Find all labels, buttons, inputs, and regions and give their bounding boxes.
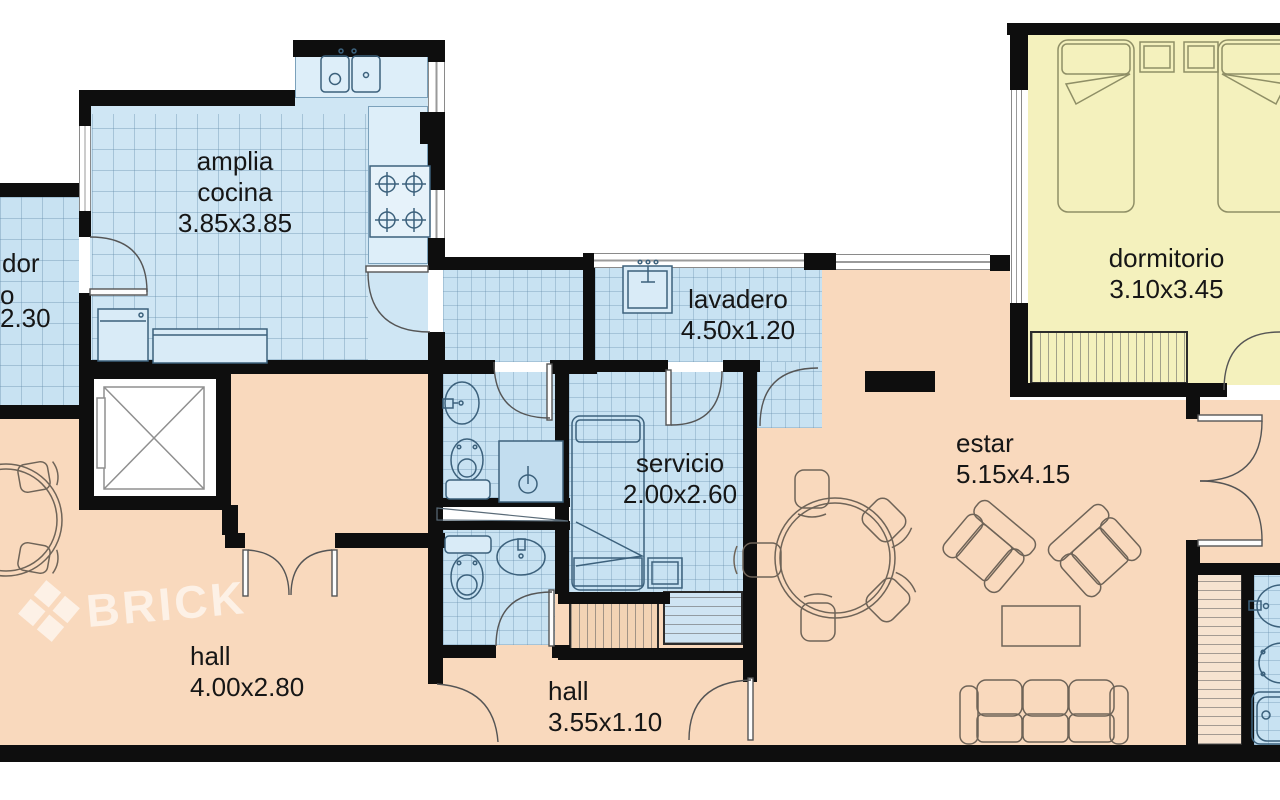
kitchen-sink-icon: [321, 49, 380, 92]
room-label-servicio: servicio 2.00x2.60: [618, 448, 742, 510]
room-label-dormitorio: dormitorio 3.10x3.45: [1094, 243, 1239, 305]
floor-plan: BRICK dor o 2.30 amplia cocina 3.85x3.85…: [0, 0, 1280, 800]
lavadero-name: lavadero: [668, 284, 808, 315]
cocina-line2: cocina: [160, 177, 310, 208]
hall-table-icon: [0, 459, 62, 576]
brick-logo-icon: [14, 576, 84, 646]
cocina-dims: 3.85x3.85: [160, 208, 310, 239]
dining-set-icon: [734, 470, 920, 641]
lavadero-dims: 4.50x1.20: [668, 315, 808, 346]
duct-icon: [437, 508, 568, 521]
room-label-lavadero: lavadero 4.50x1.20: [668, 284, 808, 346]
kitchen-cabinet-icon: [98, 309, 267, 363]
bath2-fixtures: [445, 536, 545, 599]
living-furniture: [940, 497, 1144, 744]
servicio-dims: 2.00x2.60: [618, 479, 742, 510]
room-label-hall-small: hall 3.55x1.10: [548, 676, 662, 738]
room-label-comedor-3: 2.30: [0, 303, 51, 334]
hall-small-dims: 3.55x1.10: [548, 707, 662, 738]
servicio-name: servicio: [618, 448, 742, 479]
hall-small-name: hall: [548, 676, 662, 707]
elevator-icon: [97, 387, 204, 489]
bath1-fixtures: [443, 382, 563, 502]
room-label-cocina: amplia cocina 3.85x3.85: [160, 146, 310, 239]
dormitorio-name: dormitorio: [1094, 243, 1239, 274]
cocina-line1: amplia: [160, 146, 310, 177]
room-label-estar: estar 5.15x4.15: [956, 428, 1070, 490]
dormitorio-dims: 3.10x3.45: [1094, 274, 1239, 305]
estar-name: estar: [956, 428, 1070, 459]
bath3-fixtures: [1249, 585, 1280, 744]
dormitorio-beds: [1058, 40, 1280, 212]
laundry-sink-icon: [623, 260, 672, 313]
hall-main-dims: 4.00x2.80: [190, 672, 304, 703]
hall-main-name: hall: [190, 641, 304, 672]
stove-icon: [370, 166, 430, 237]
estar-dims: 5.15x4.15: [956, 459, 1070, 490]
room-label-hall-main: hall 4.00x2.80: [190, 641, 304, 703]
room-label-comedor-1: dor: [2, 248, 40, 279]
